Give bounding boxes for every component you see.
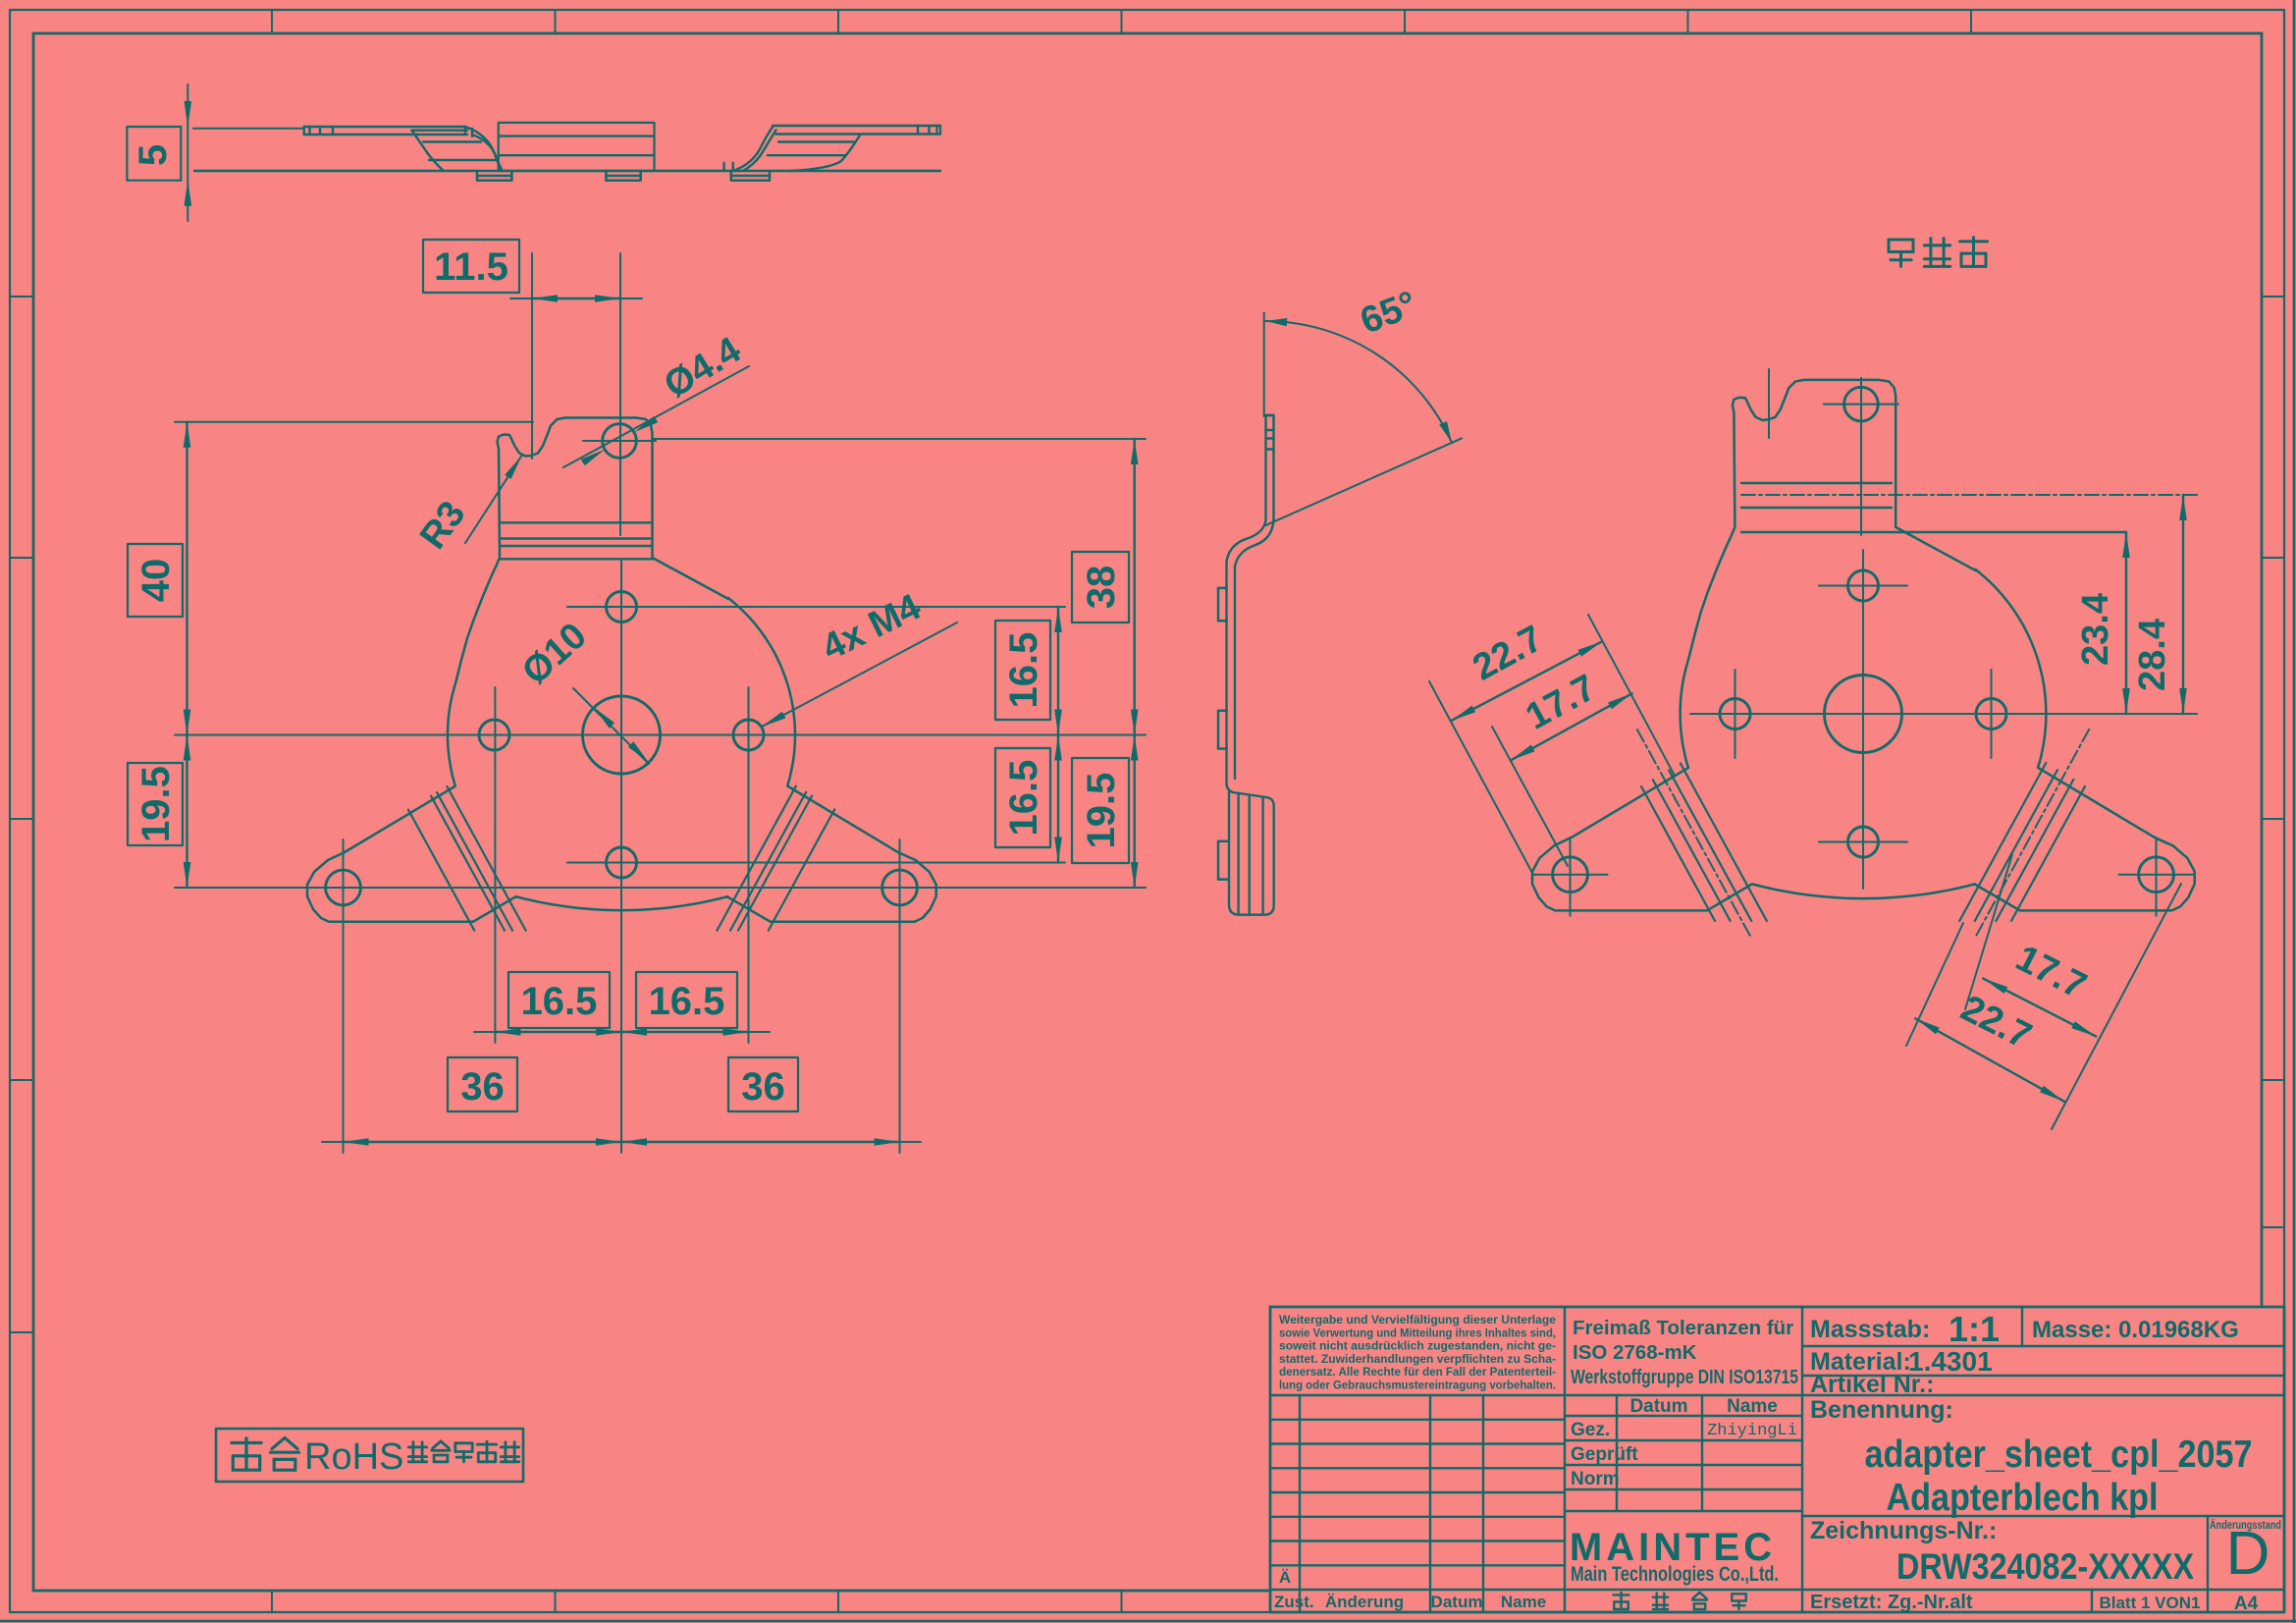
svg-text:DRW324082-XXXXX: DRW324082-XXXXX (1896, 1546, 2194, 1587)
svg-text:denersatz. Alle Rechte für den: denersatz. Alle Rechte für den Fall der … (1279, 1365, 1556, 1379)
svg-text:Adapterblech kpl: Adapterblech kpl (1887, 1477, 2159, 1519)
svg-text:D: D (2226, 1520, 2270, 1588)
svg-text:Weitergabe und Vervielfältigun: Weitergabe und Vervielfältigung dieser U… (1279, 1313, 1556, 1326)
svg-text:19.5: 19.5 (1080, 773, 1123, 849)
svg-text:36: 36 (460, 1065, 505, 1109)
svg-text:11.5: 11.5 (434, 245, 508, 289)
svg-text:Änderung: Änderung (1325, 1593, 1404, 1611)
svg-text:Freimaß Toleranzen für: Freimaß Toleranzen für (1573, 1317, 1793, 1339)
svg-text:16.5: 16.5 (1002, 760, 1045, 837)
svg-text:Norm: Norm (1571, 1469, 1620, 1489)
svg-text:Blatt 1 VON1: Blatt 1 VON1 (2100, 1594, 2201, 1612)
svg-text:Zeichnungs-Nr.:: Zeichnungs-Nr.: (1810, 1517, 1997, 1544)
svg-text:16.5: 16.5 (649, 980, 725, 1023)
svg-text:Datum: Datum (1629, 1396, 1687, 1417)
svg-text:A4: A4 (2234, 1594, 2259, 1614)
svg-text:0.01968KG: 0.01968KG (2118, 1317, 2239, 1343)
svg-text:16.5: 16.5 (1002, 632, 1045, 709)
svg-text:Werkstoffgruppe DIN ISO13715: Werkstoffgruppe DIN ISO13715 (1571, 1367, 1798, 1388)
svg-text:ZhiyingLi: ZhiyingLi (1707, 1422, 1797, 1440)
svg-text:Zust.: Zust. (1274, 1593, 1314, 1611)
svg-text:19.5: 19.5 (134, 766, 178, 842)
svg-text:23.4: 23.4 (2075, 593, 2116, 666)
svg-text:lung oder Gebrauchsmustereintr: lung oder Gebrauchsmustereintragung vorb… (1279, 1379, 1556, 1392)
svg-text:Name: Name (1501, 1593, 1546, 1611)
svg-text:soweit nicht ausdrücklich zuge: soweit nicht ausdrücklich zugestanden, n… (1279, 1339, 1556, 1353)
svg-text:Datum: Datum (1431, 1593, 1483, 1611)
svg-text:38: 38 (1080, 566, 1123, 610)
svg-text:Benennung:: Benennung: (1810, 1396, 1953, 1424)
svg-text:adapter_sheet_cpl_2057: adapter_sheet_cpl_2057 (1865, 1434, 2253, 1476)
svg-text:Masse:: Masse: (2032, 1317, 2111, 1343)
svg-text:Name: Name (1727, 1396, 1778, 1417)
svg-text:28.4: 28.4 (2132, 619, 2173, 691)
svg-text:stattet. Zuwiderhandlungen ver: stattet. Zuwiderhandlungen verpflichten … (1279, 1352, 1556, 1366)
svg-text:Gez.: Gez. (1571, 1420, 1610, 1440)
svg-text:ISO 2768-mK: ISO 2768-mK (1573, 1341, 1697, 1364)
svg-text:Geprüft: Geprüft (1571, 1444, 1638, 1465)
svg-text:RoHS: RoHS (304, 1436, 403, 1478)
svg-text:16.5: 16.5 (521, 980, 598, 1023)
svg-text:Ä: Ä (1279, 1568, 1291, 1587)
svg-text:sowie Verwertung und Mitteilun: sowie Verwertung und Mitteilung ihres In… (1279, 1325, 1556, 1339)
svg-text:36: 36 (741, 1065, 785, 1109)
svg-text:Artikel Nr.:: Artikel Nr.: (1810, 1371, 1934, 1398)
svg-text:40: 40 (134, 559, 178, 603)
svg-text:Ersetzt: Zg.-Nr.alt: Ersetzt: Zg.-Nr.alt (1810, 1592, 1973, 1613)
svg-text:Massstab:: Massstab: (1810, 1316, 1930, 1343)
svg-text:1:1: 1:1 (1949, 1309, 2000, 1349)
svg-text:5: 5 (132, 144, 175, 166)
svg-text:Main Technologies Co.,Ltd.: Main Technologies Co.,Ltd. (1571, 1563, 1779, 1586)
